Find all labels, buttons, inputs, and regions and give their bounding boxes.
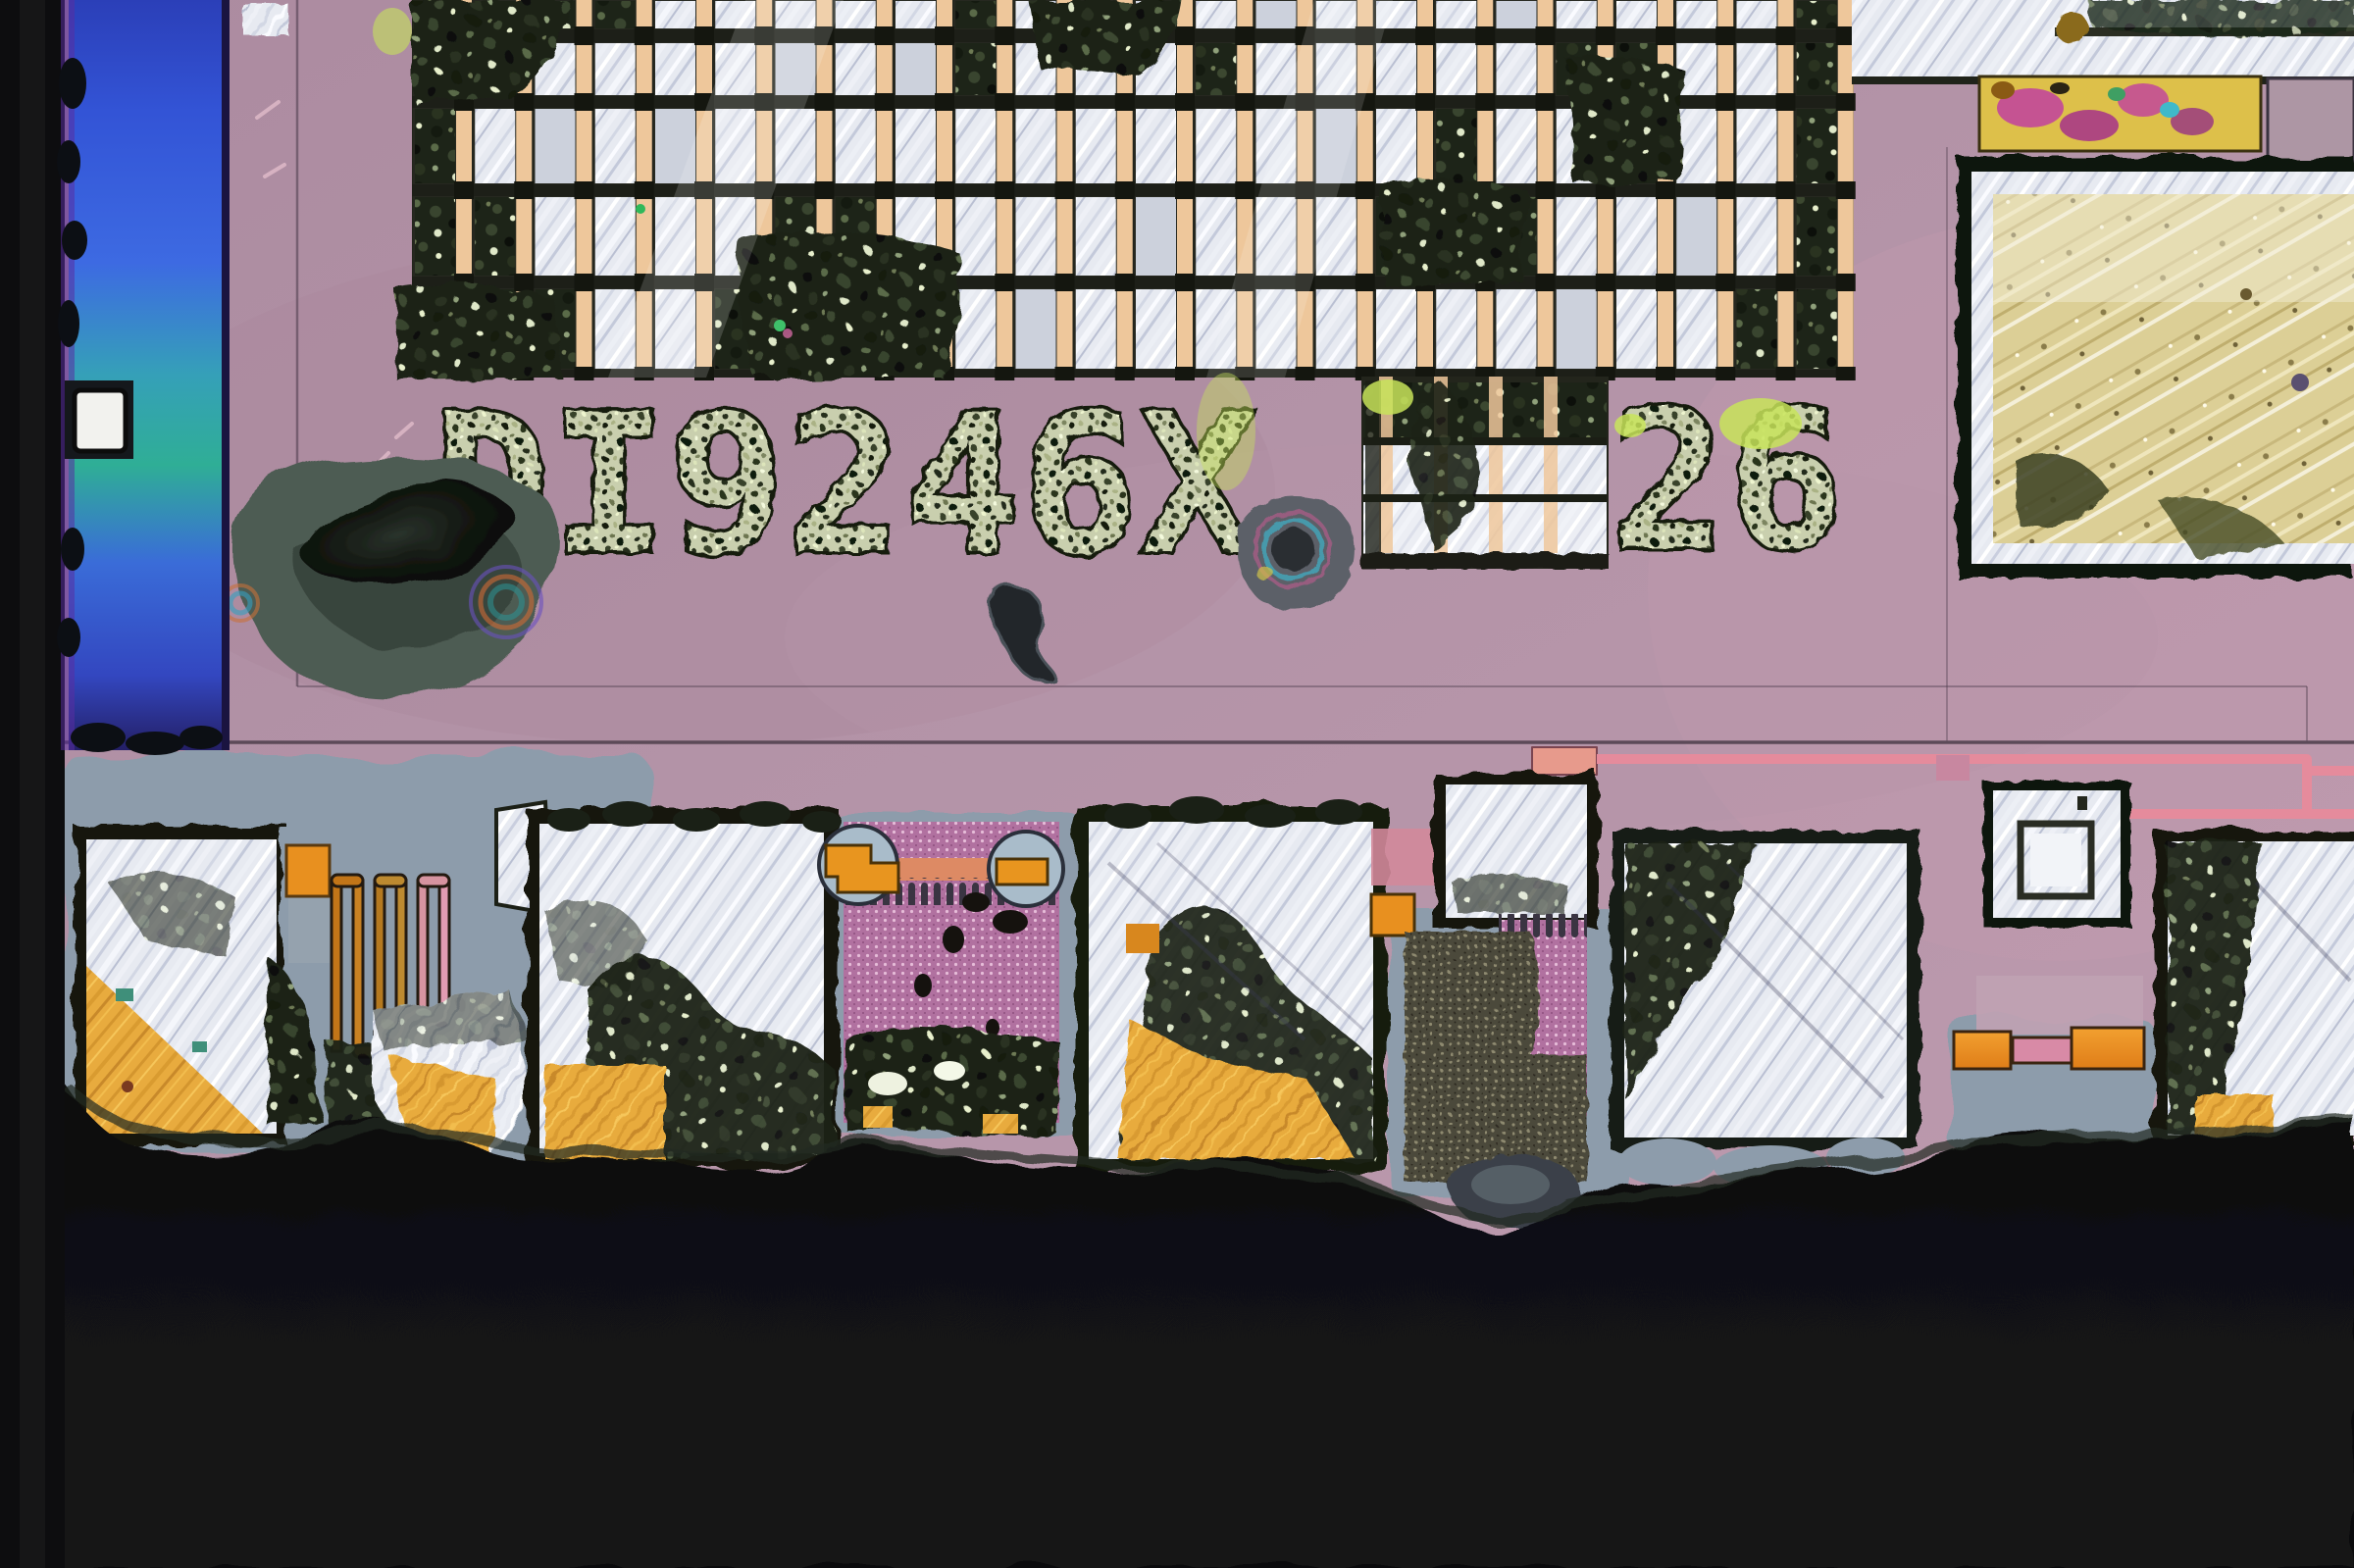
grid-cell <box>1736 42 1778 96</box>
grid-cell <box>1736 108 1778 184</box>
grid-via <box>1115 93 1135 111</box>
grid-via <box>1415 93 1435 111</box>
grid-via <box>694 26 714 45</box>
test-array-1 <box>819 822 1063 1136</box>
grid-via <box>575 181 594 199</box>
gray-structure <box>2268 78 2354 165</box>
grid-cell <box>1075 196 1117 277</box>
grid-cell <box>1375 288 1417 370</box>
grid-via <box>875 26 895 45</box>
grid-cell <box>954 42 997 96</box>
grid-cell <box>1736 288 1778 370</box>
grid-via <box>1055 274 1075 291</box>
grid-via <box>1715 274 1735 291</box>
grid-cell <box>1556 196 1598 277</box>
grid-cell <box>1496 108 1538 184</box>
grid-via <box>1475 26 1495 45</box>
grid-cell <box>1796 108 1838 184</box>
grid-via <box>1115 181 1135 199</box>
grid-cell <box>654 0 696 29</box>
test-array-2 <box>1405 914 1587 1229</box>
grid-via <box>575 26 594 45</box>
resistor-contact <box>286 845 330 896</box>
grid-cell <box>1195 0 1237 29</box>
grid-via <box>1536 181 1556 199</box>
grid-cell <box>474 108 516 184</box>
orange-connector-right <box>997 859 1048 885</box>
grid-via <box>1235 181 1254 199</box>
grid-cell <box>1195 196 1237 277</box>
grid-cell <box>594 42 637 96</box>
grid-via <box>1235 26 1254 45</box>
iridescent-test-structure <box>1979 76 2261 151</box>
grid-cell <box>654 42 696 96</box>
trace-stub <box>1532 747 1597 775</box>
grid-cell <box>1435 288 1477 370</box>
metal-fragment <box>243 4 288 35</box>
grid-cell <box>895 42 937 96</box>
grid-cell <box>1675 288 1717 370</box>
grid-cell <box>1496 288 1538 370</box>
die-marking-line2: 26 <box>1611 370 1846 593</box>
grid-via <box>575 274 594 291</box>
die-photo: DI9246X 26 <box>0 0 2354 1568</box>
grid-via <box>995 274 1014 291</box>
green-speck <box>636 204 645 214</box>
left-margin-sheen <box>20 0 45 1568</box>
blue-passivation-stripe <box>57 0 230 755</box>
grid-via <box>1776 93 1796 111</box>
grid-via <box>1175 274 1195 291</box>
grid-via <box>1235 93 1254 111</box>
grid-via <box>1596 274 1615 291</box>
bond-pad-1 <box>75 826 288 1145</box>
grid-cell <box>1615 0 1658 29</box>
grid-via <box>1836 274 1856 291</box>
grid-cell <box>1435 108 1477 184</box>
grid-via <box>815 181 835 199</box>
grid-via <box>815 93 835 111</box>
grid-via <box>1656 26 1675 45</box>
grid-cell <box>954 108 997 184</box>
grid-via <box>575 93 594 111</box>
grid-cell <box>1796 196 1838 277</box>
grid-cell <box>594 196 637 277</box>
grid-via <box>454 181 474 199</box>
grid-cell <box>1135 288 1177 370</box>
grid-via <box>514 274 534 291</box>
grid-cell <box>954 0 997 29</box>
grid-cell <box>1675 196 1717 277</box>
grid-cell <box>594 0 637 29</box>
grid-cell <box>835 42 877 96</box>
grid-cell <box>1796 0 1838 29</box>
grid-cell <box>414 108 456 184</box>
grid-cell <box>1195 42 1237 96</box>
grid-via <box>1656 181 1675 199</box>
grid-via <box>1715 181 1735 199</box>
salmon-patch <box>1371 829 1440 885</box>
grid-cell <box>1796 288 1838 370</box>
grid-cell <box>1255 0 1298 29</box>
grid-via <box>995 26 1014 45</box>
grid-cell <box>414 196 456 277</box>
grid-cell <box>1195 108 1237 184</box>
grid-via <box>1175 181 1195 199</box>
grid-cell <box>474 196 516 277</box>
grid-cell <box>535 196 577 277</box>
grid-via <box>514 93 534 111</box>
grid-via <box>635 93 654 111</box>
grid-cell <box>594 108 637 184</box>
bright-mauve-patch <box>1976 976 2143 1035</box>
grid-via <box>1715 93 1735 111</box>
bond-pad-3 <box>1075 796 1387 1171</box>
edge-pad-on-stripe <box>65 380 133 459</box>
large-probe-pad <box>1957 157 2354 579</box>
oily-blob <box>1238 496 1355 609</box>
bond-pad-2 <box>496 801 842 1169</box>
framed-pad <box>1983 782 2130 927</box>
grid-cell <box>1075 288 1117 370</box>
grid-cell <box>1615 288 1658 370</box>
grid-via <box>995 93 1014 111</box>
grid-cell <box>1435 0 1477 29</box>
brown-fleck <box>2055 12 2088 43</box>
grid-cell <box>1796 42 1838 96</box>
grid-via <box>1055 93 1075 111</box>
grid-via <box>935 93 954 111</box>
grid-via <box>1656 274 1675 291</box>
grid-via <box>1715 26 1735 45</box>
grid-cell <box>1135 196 1177 277</box>
grid-via <box>1175 93 1195 111</box>
grid-cell <box>1015 288 1057 370</box>
grid-via <box>1115 274 1135 291</box>
bond-pad-5 <box>1611 830 1920 1189</box>
grid-via <box>1836 181 1856 199</box>
grid-via <box>1836 93 1856 111</box>
grid-cell <box>1556 288 1598 370</box>
grid-cell <box>1675 0 1717 29</box>
grid-via <box>875 181 895 199</box>
small-bond-pad <box>1434 773 1599 930</box>
grid-via <box>1596 181 1615 199</box>
stripe-dark-edge <box>222 0 230 750</box>
grid-cell <box>1015 196 1057 277</box>
grid-via <box>995 181 1014 199</box>
grid-cell <box>1375 108 1417 184</box>
grid-cell <box>1075 108 1117 184</box>
grid-via <box>1776 274 1796 291</box>
grid-cell <box>954 196 997 277</box>
grid-via <box>635 181 654 199</box>
grid-via <box>1055 181 1075 199</box>
grid-cell <box>1375 42 1417 96</box>
grid-via <box>1536 93 1556 111</box>
grid-via <box>1536 274 1556 291</box>
bond-pad-6 <box>2154 830 2354 1145</box>
grid-cell <box>1496 0 1538 29</box>
grid-via <box>514 181 534 199</box>
grid-via <box>1175 26 1195 45</box>
grid-via <box>935 26 954 45</box>
grid-cell <box>1736 0 1778 29</box>
grid-via <box>1356 181 1375 199</box>
grid-via <box>1536 26 1556 45</box>
grid-cell <box>1435 42 1477 96</box>
grid-via <box>1296 367 1315 380</box>
die-marking-line1: DI9246X <box>434 374 1257 597</box>
grid-cell <box>1736 196 1778 277</box>
grid-via <box>1475 93 1495 111</box>
grid-via <box>1776 181 1796 199</box>
grid-cell <box>1556 0 1598 29</box>
grid-cell <box>1615 196 1658 277</box>
grid-cell <box>895 0 937 29</box>
grid-cell <box>835 108 877 184</box>
right-structures <box>1957 76 2354 579</box>
grid-via <box>935 181 954 199</box>
grid-cell <box>1496 42 1538 96</box>
grid-via <box>1596 26 1615 45</box>
grid-via <box>1356 274 1375 291</box>
die-photo-stage: DI9246X 26 <box>0 0 2354 1568</box>
grid-cell <box>1675 108 1717 184</box>
grid-via <box>875 93 895 111</box>
grid-cell <box>895 108 937 184</box>
grid-via <box>635 26 654 45</box>
grid-cell <box>1015 108 1057 184</box>
grid-cell <box>1135 108 1177 184</box>
grid-cell <box>1315 288 1357 370</box>
grid-via <box>1776 26 1796 45</box>
grid-via <box>1415 26 1435 45</box>
grid-cell <box>535 108 577 184</box>
orange-via-square <box>1371 894 1414 936</box>
